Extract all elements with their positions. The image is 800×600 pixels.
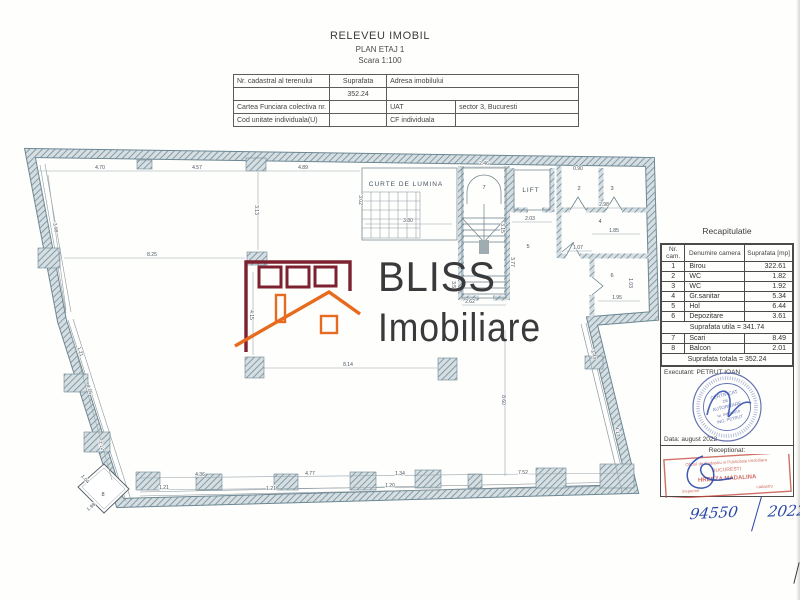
recap-cell: 322.61 bbox=[745, 262, 793, 272]
recap-rows-1: 1Birou322.612WC1.823WC1.924Gr.sanitar5.3… bbox=[662, 262, 793, 322]
light-court-grid bbox=[362, 192, 420, 238]
recap-cell: 3 bbox=[662, 282, 685, 292]
dimension-label: 1.95 bbox=[612, 295, 622, 301]
recap-row: 5Hol6.44 bbox=[662, 302, 793, 312]
light-court-label: CURTE DE LUMINA bbox=[369, 181, 443, 188]
recap-row: 6Depozitare3.61 bbox=[662, 312, 793, 322]
col-suprafata: Suprafata [mp] bbox=[745, 245, 793, 262]
room-number-label: 6 bbox=[610, 273, 613, 279]
recap-cell: Scari bbox=[685, 334, 745, 344]
room-number-label: 3 bbox=[610, 186, 613, 192]
recap-cell: 6 bbox=[662, 312, 685, 322]
recap-cell: 6.44 bbox=[745, 302, 793, 312]
recap-row: 8Balcon2.01 bbox=[662, 344, 793, 354]
recap-cell: Depozitare bbox=[685, 312, 745, 322]
dimension-label: 2.46 bbox=[479, 161, 489, 167]
col-nr-cam: Nr. cam. bbox=[662, 245, 685, 262]
table-row: Suprafata totala = 352.24 bbox=[662, 354, 793, 366]
recap-row: 2WC1.82 bbox=[662, 272, 793, 282]
recap-cell: Hol bbox=[685, 302, 745, 312]
recap-row: 7Scari8.49 bbox=[662, 334, 793, 344]
recap-cell: 1.92 bbox=[745, 282, 793, 292]
recap-cell: Balcon bbox=[685, 344, 745, 354]
dimension-labels: 4.704.574.892.463.994.051.212.128.258.14… bbox=[51, 161, 633, 513]
dimension-label: 3.80 bbox=[403, 218, 413, 224]
table-header-row: Nr. cam. Denumire camera Suprafata [mp] bbox=[662, 245, 793, 262]
receptionat-section: Receptionat: Oficiul de Cadastru si Publ… bbox=[661, 445, 793, 496]
table-row: Suprafata utila = 341.74 bbox=[662, 322, 793, 334]
logo-word-top: BLISS bbox=[378, 253, 496, 300]
dimension-label: 4.77 bbox=[305, 471, 315, 477]
dimension-label: 1.20 bbox=[385, 483, 395, 489]
dimension-label: 4.36 bbox=[195, 472, 205, 478]
recap-cell: 2 bbox=[662, 272, 685, 282]
dimension-label: 8.14 bbox=[343, 362, 353, 368]
logo-word-bottom: Imobiliare bbox=[378, 306, 541, 350]
dimension-lines bbox=[36, 167, 648, 490]
round-certificate-stamp: CERTIFICAT DE AUTORIZARE Nr. 0450/2010 I… bbox=[687, 369, 767, 445]
dimension-label: 1.07 bbox=[573, 245, 583, 251]
logo: BLISS Imobiliare bbox=[235, 253, 541, 352]
dimension-label: 2.03 bbox=[525, 216, 535, 222]
dimension-label: 8.25 bbox=[147, 252, 157, 258]
recap-cell: 2.01 bbox=[745, 344, 793, 354]
recap-cell: 4 bbox=[662, 292, 685, 302]
recap-cell: 8.49 bbox=[745, 334, 793, 344]
room-number-label: 2 bbox=[577, 186, 580, 192]
dimension-label: 3.02 bbox=[357, 195, 363, 205]
suprafata-totala: Suprafata totala = 352.24 bbox=[662, 354, 793, 366]
executant-section: Executant: PETRUT IOAN CERTIFICAT DE AUT… bbox=[661, 366, 793, 445]
dimension-label: 4.13 bbox=[613, 426, 621, 437]
recap-cell: 7 bbox=[662, 334, 685, 344]
handwritten-registry-number: 94550 2022 bbox=[684, 500, 800, 536]
stair-landing-block bbox=[479, 240, 489, 254]
dimension-label: 1.03 bbox=[627, 278, 633, 288]
recap-row: 3WC1.92 bbox=[662, 282, 793, 292]
receptionat-signature bbox=[675, 448, 747, 496]
recap-row: 4Gr.sanitar5.34 bbox=[662, 292, 793, 302]
room-number-label: 5 bbox=[526, 244, 529, 250]
recap-box: Nr. cam. Denumire camera Suprafata [mp] … bbox=[660, 243, 794, 497]
dimension-label: 3.15 bbox=[499, 223, 505, 233]
recap-cell: WC bbox=[685, 272, 745, 282]
recap-cell: Birou bbox=[685, 262, 745, 272]
recap-cell: 8 bbox=[662, 344, 685, 354]
dimension-label: 2.98 bbox=[599, 202, 609, 208]
suprafata-utila: Suprafata utila = 341.74 bbox=[662, 322, 793, 334]
dimension-label: 1.21 bbox=[266, 486, 276, 492]
recap-cell: 3.61 bbox=[745, 312, 793, 322]
dimension-label: 1.21 bbox=[159, 485, 169, 491]
dimension-label: 0.90 bbox=[573, 166, 583, 172]
recap-cell: 1.82 bbox=[745, 272, 793, 282]
handwritten-year: 2022 bbox=[767, 501, 800, 520]
dimension-label: 1.85 bbox=[609, 228, 619, 234]
handwritten-number: 94550 bbox=[689, 503, 739, 523]
recap-table: Nr. cam. Denumire camera Suprafata [mp] … bbox=[661, 244, 793, 366]
dimension-label: 4.15 bbox=[248, 310, 254, 320]
room-number-label: 8 bbox=[101, 492, 104, 498]
light-court bbox=[362, 168, 457, 240]
recap-cell: 5 bbox=[662, 302, 685, 312]
dimension-label: 3.99 bbox=[51, 222, 59, 233]
handwritten-slash bbox=[751, 497, 762, 532]
scanned-survey-page: RELEVEU IMOBIL PLAN ETAJ 1 Scara 1:100 N… bbox=[0, 0, 800, 600]
dimension-label: 1.34 bbox=[395, 471, 405, 477]
logo-building-icon bbox=[246, 262, 350, 352]
recap-title: Recapitulatie bbox=[660, 226, 794, 236]
dimension-label: 8.60 bbox=[500, 395, 506, 405]
dimension-label: 4.57 bbox=[192, 165, 202, 171]
room-number-label: 7 bbox=[482, 185, 485, 191]
col-denumire: Denumire camera bbox=[685, 245, 745, 262]
stamp-line: cadastru bbox=[756, 483, 773, 489]
dimension-label: 3.77 bbox=[509, 257, 515, 267]
recap-panel: Recapitulatie Nr. cam. Denumire camera S… bbox=[660, 226, 794, 497]
lift-label: LIFT bbox=[522, 187, 539, 194]
dimension-label: 4.89 bbox=[298, 165, 308, 171]
dimension-label: 7.52 bbox=[518, 470, 528, 476]
recap-row: 1Birou322.61 bbox=[662, 262, 793, 272]
dimension-label: 3.13 bbox=[253, 205, 259, 215]
date-label: Data: august 2022 bbox=[664, 436, 717, 443]
dimension-label: 4.70 bbox=[95, 165, 105, 171]
recap-cell: Gr.sanitar bbox=[685, 292, 745, 302]
room-number-label: 4 bbox=[598, 219, 601, 225]
recap-cell: 1 bbox=[662, 262, 685, 272]
recap-cell: 5.34 bbox=[745, 292, 793, 302]
recap-cell: WC bbox=[685, 282, 745, 292]
recap-rows-2: 7Scari8.498Balcon2.01 bbox=[662, 334, 793, 354]
